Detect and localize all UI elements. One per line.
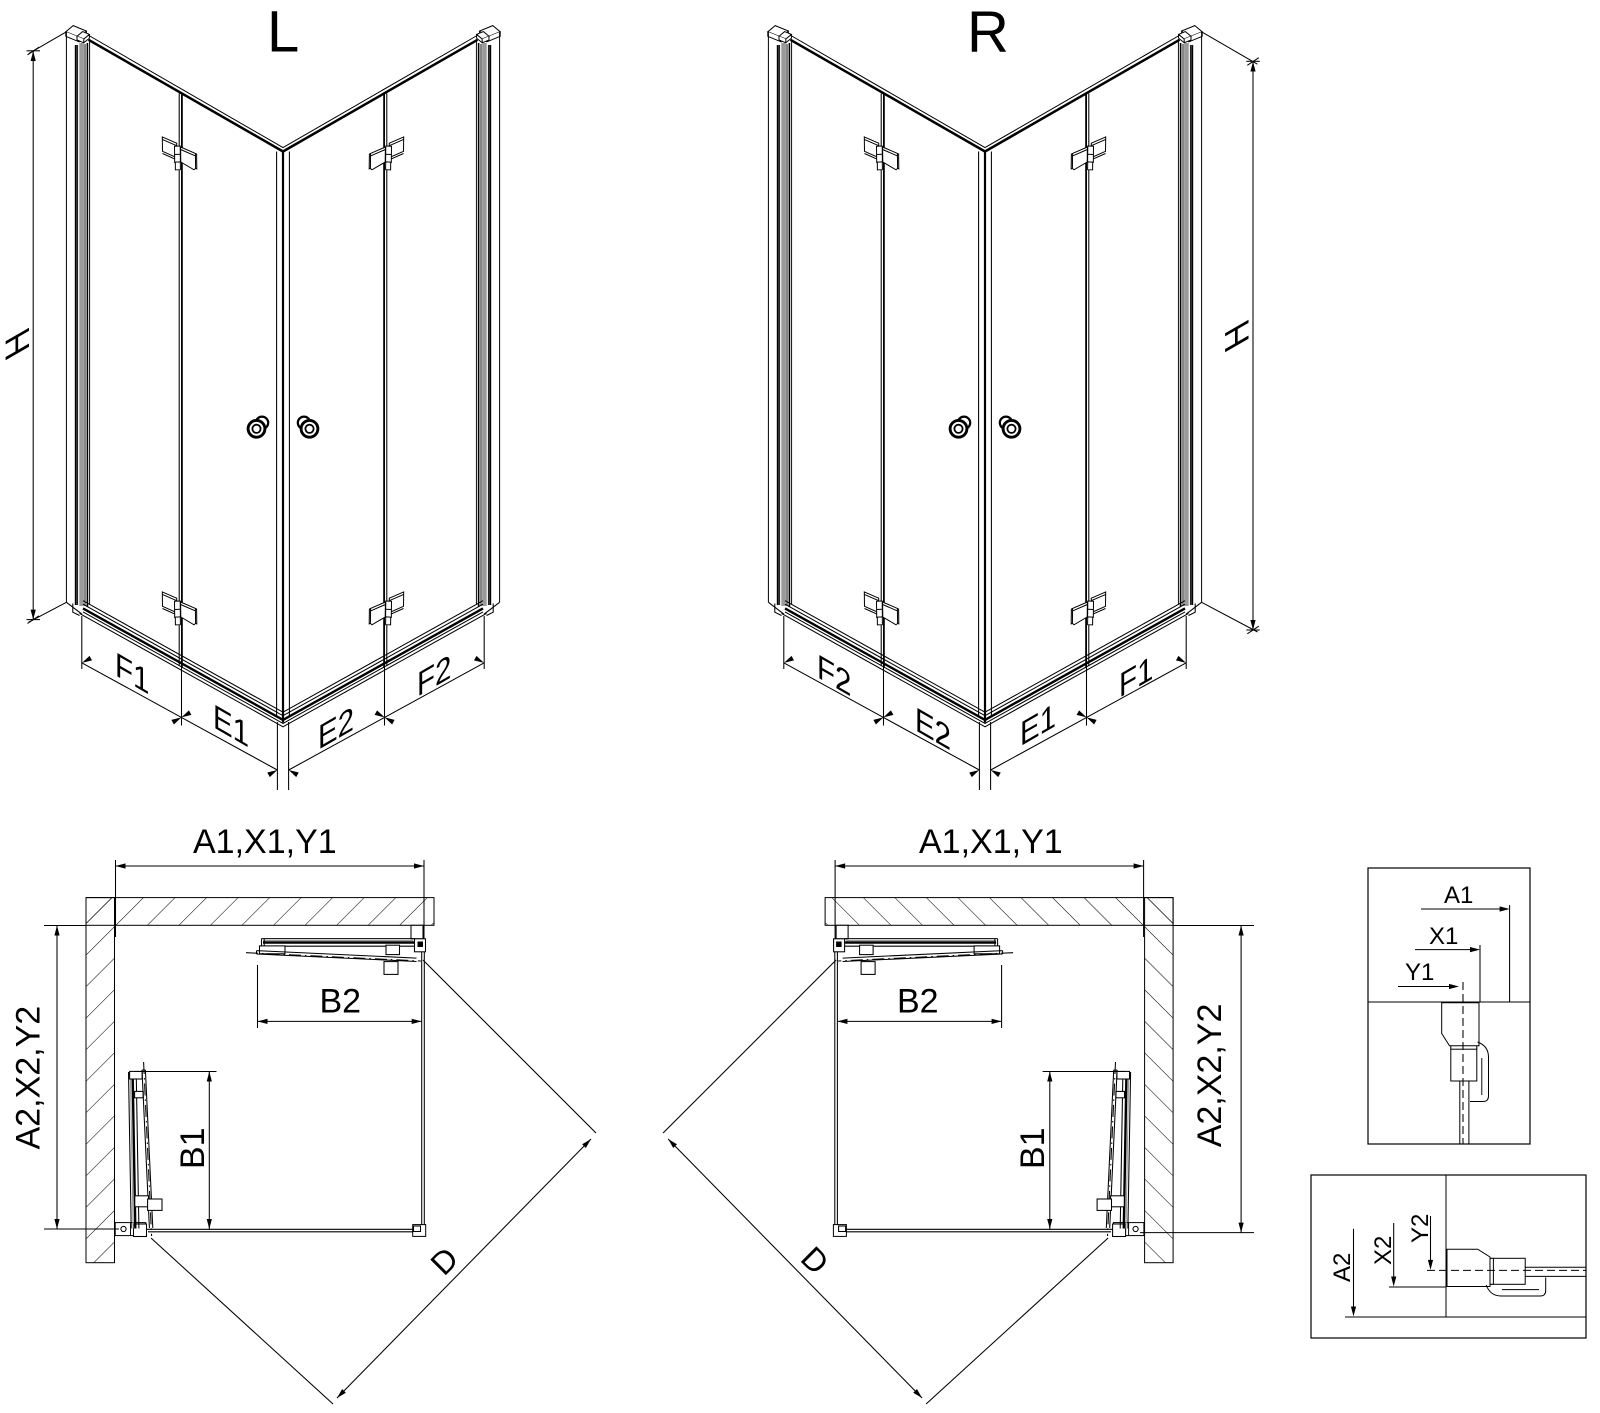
svg-text:A1,X1,Y1: A1,X1,Y1 [919,823,1063,861]
svg-text:A2,X2,Y2: A2,X2,Y2 [1191,1004,1229,1148]
svg-text:D: D [423,1240,465,1282]
svg-text:A1: A1 [1444,882,1473,909]
svg-text:E1: E1 [213,697,249,756]
svg-text:L: L [267,0,299,64]
svg-text:A1,X1,Y1: A1,X1,Y1 [193,823,337,861]
svg-text:X1: X1 [1429,923,1458,950]
svg-text:X2: X2 [1370,1236,1397,1265]
svg-text:Y2: Y2 [1407,1214,1434,1243]
svg-text:H: H [1218,313,1256,359]
svg-text:D: D [794,1239,836,1281]
svg-text:E2: E2 [318,699,354,758]
svg-text:B1: B1 [1014,1127,1052,1169]
svg-text:F2: F2 [417,647,451,705]
svg-text:A2,X2,Y2: A2,X2,Y2 [10,1006,48,1150]
svg-text:Y1: Y1 [1405,959,1434,986]
svg-text:B1: B1 [174,1127,212,1169]
svg-text:E2: E2 [915,700,951,759]
svg-text:F2: F2 [817,647,851,705]
svg-text:F1: F1 [115,645,149,703]
svg-text:B2: B2 [320,983,362,1021]
svg-text:A2: A2 [1329,1253,1356,1282]
svg-text:R: R [967,0,1009,64]
svg-text:F1: F1 [1119,648,1153,706]
svg-text:H: H [0,321,36,367]
svg-text:B2: B2 [897,983,939,1021]
